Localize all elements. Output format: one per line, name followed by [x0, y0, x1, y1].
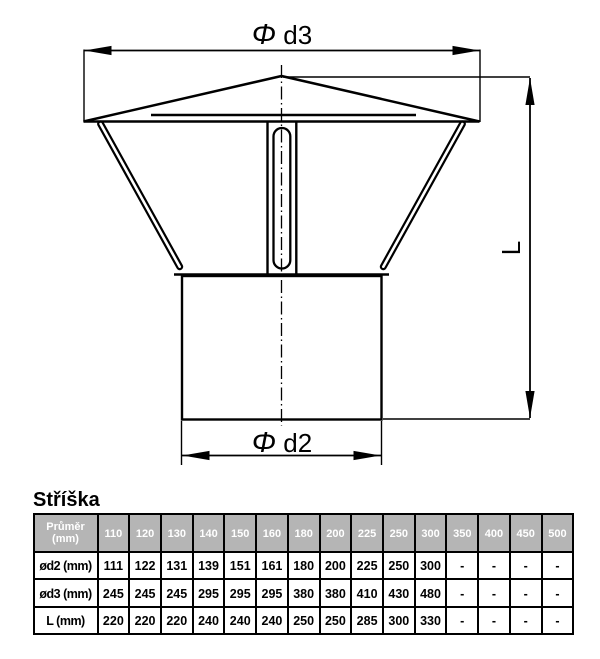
- svg-text:Φ d2: Φ d2: [252, 427, 312, 459]
- svg-text:Φ d3: Φ d3: [252, 19, 312, 51]
- svg-text:L: L: [496, 241, 526, 255]
